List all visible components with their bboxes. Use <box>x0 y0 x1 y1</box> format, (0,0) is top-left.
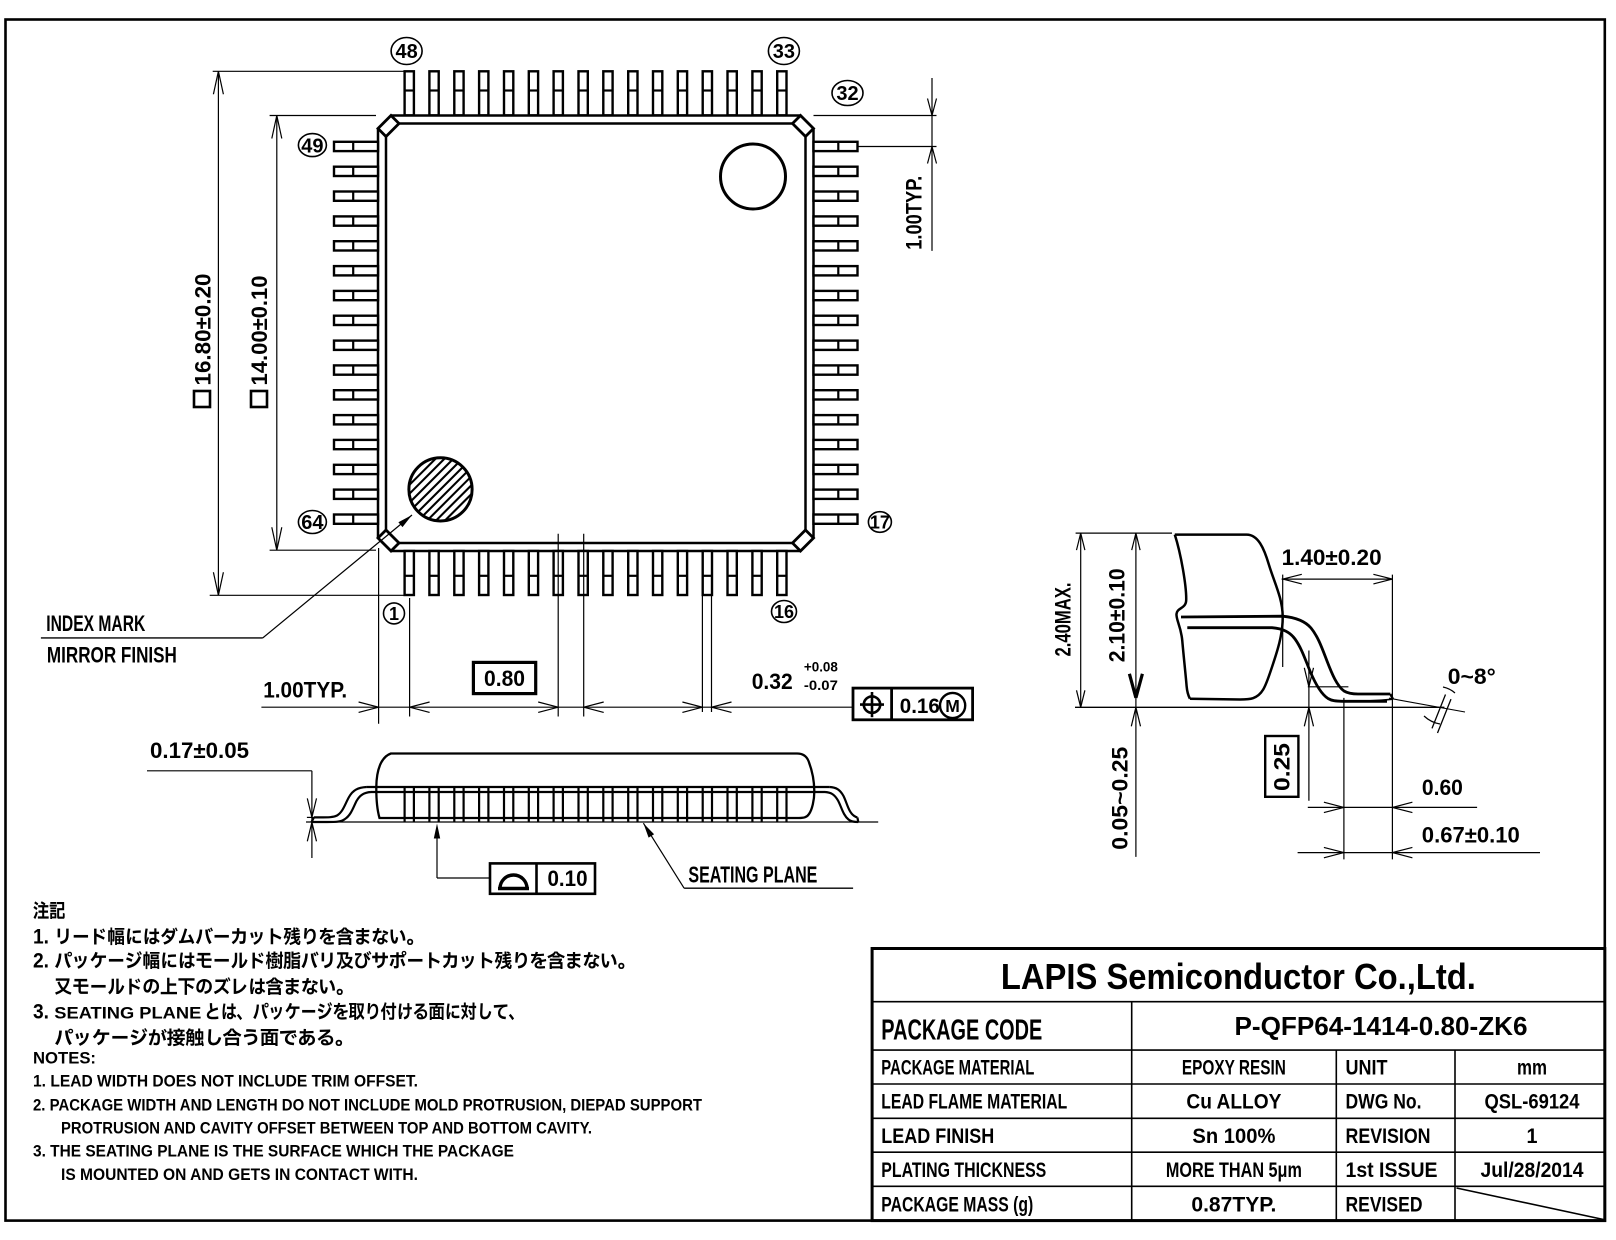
svg-text:0~8°: 0~8° <box>1448 664 1496 689</box>
svg-text:REVISION: REVISION <box>1346 1125 1431 1148</box>
svg-text:PROTRUSION AND CAVITY OFFSET B: PROTRUSION AND CAVITY OFFSET BETWEEN TOP… <box>61 1119 592 1138</box>
svg-text:PACKAGE MATERIAL: PACKAGE MATERIAL <box>881 1057 1034 1080</box>
svg-text:0.32: 0.32 <box>752 669 793 694</box>
svg-text:17: 17 <box>870 513 890 533</box>
svg-text:IS MOUNTED ON AND GETS IN CONT: IS MOUNTED ON AND GETS IN CONTACT WITH. <box>61 1165 418 1184</box>
svg-text:0.87TYP.: 0.87TYP. <box>1191 1194 1276 1217</box>
svg-text:16: 16 <box>774 602 794 622</box>
svg-text:EPOXY RESIN: EPOXY RESIN <box>1182 1057 1286 1080</box>
svg-text:LAPIS Semiconductor Co.,Ltd.: LAPIS Semiconductor Co.,Ltd. <box>1001 956 1476 997</box>
svg-text:SEATING PLANE: SEATING PLANE <box>54 1004 201 1023</box>
svg-text:1.: 1. <box>33 926 49 949</box>
svg-text:SEATING PLANE: SEATING PLANE <box>688 861 817 887</box>
svg-text:PLATING THICKNESS: PLATING THICKNESS <box>881 1159 1046 1182</box>
svg-text:MORE THAN 5μm: MORE THAN 5μm <box>1166 1159 1302 1182</box>
svg-text:3. THE SEATING PLANE IS THE S: 3. THE SEATING PLANE IS THE SURFACE WHIC… <box>33 1142 514 1161</box>
svg-text:0.67±0.10: 0.67±0.10 <box>1422 823 1520 848</box>
svg-text:33: 33 <box>773 41 795 63</box>
svg-text:LEAD FLAME MATERIAL: LEAD FLAME MATERIAL <box>881 1091 1067 1114</box>
svg-text:INDEX MARK: INDEX MARK <box>46 611 145 636</box>
svg-text:0.16: 0.16 <box>900 695 940 718</box>
svg-text:0.80: 0.80 <box>484 666 525 691</box>
svg-text:0.60: 0.60 <box>1422 775 1463 800</box>
svg-text:1. LEAD WIDTH DOES NOT INCLUD: 1. LEAD WIDTH DOES NOT INCLUDE TRIM OFFS… <box>33 1072 418 1091</box>
svg-text:PACKAGE CODE: PACKAGE CODE <box>881 1015 1042 1047</box>
svg-text:2.40MAX.: 2.40MAX. <box>1051 583 1076 657</box>
svg-text:64: 64 <box>301 512 324 534</box>
svg-text:QSL-69124: QSL-69124 <box>1485 1091 1580 1114</box>
svg-text:3.: 3. <box>33 1001 49 1024</box>
svg-text:Cu ALLOY: Cu ALLOY <box>1186 1091 1281 1114</box>
svg-text:2.: 2. <box>33 950 49 973</box>
svg-text:32: 32 <box>836 83 858 105</box>
svg-text:LEAD FINISH: LEAD FINISH <box>881 1125 994 1148</box>
svg-text:PACKAGE MASS (g): PACKAGE MASS (g) <box>881 1194 1033 1217</box>
svg-text:NOTES:: NOTES: <box>33 1049 96 1068</box>
svg-text:49: 49 <box>301 135 323 157</box>
svg-text:M: M <box>945 696 960 716</box>
svg-text:-0.07: -0.07 <box>804 677 838 693</box>
svg-text:1.00TYP.: 1.00TYP. <box>902 176 927 250</box>
svg-text:1.00TYP.: 1.00TYP. <box>263 678 347 703</box>
svg-text:UNIT: UNIT <box>1346 1057 1388 1080</box>
svg-text:0.25: 0.25 <box>1270 743 1295 791</box>
svg-text:REVISED: REVISED <box>1346 1194 1423 1217</box>
svg-text:1st ISSUE: 1st ISSUE <box>1346 1159 1438 1182</box>
svg-text:Jul/28/2014: Jul/28/2014 <box>1481 1159 1584 1182</box>
svg-text:14.00±0.10: 14.00±0.10 <box>247 276 272 386</box>
svg-text:Sn 100%: Sn 100% <box>1192 1125 1275 1148</box>
svg-text:0.17±0.05: 0.17±0.05 <box>150 738 249 763</box>
svg-text:2. PACKAGE WIDTH AND LENGTH D: 2. PACKAGE WIDTH AND LENGTH DO NOT INCLU… <box>33 1096 703 1115</box>
svg-text:P-QFP64-1414-0.80-ZK6: P-QFP64-1414-0.80-ZK6 <box>1235 1011 1528 1041</box>
svg-text:48: 48 <box>395 41 417 63</box>
svg-text:16.80±0.20: 16.80±0.20 <box>191 274 216 386</box>
svg-text:+0.08: +0.08 <box>804 659 838 675</box>
svg-text:MIRROR FINISH: MIRROR FINISH <box>47 642 177 667</box>
svg-text:1: 1 <box>389 604 399 624</box>
svg-text:DWG No.: DWG No. <box>1346 1091 1422 1114</box>
svg-text:2.10±0.10: 2.10±0.10 <box>1105 568 1130 662</box>
svg-text:mm: mm <box>1517 1057 1547 1080</box>
svg-text:0.05~0.25: 0.05~0.25 <box>1108 747 1133 850</box>
svg-text:0.10: 0.10 <box>548 866 588 891</box>
svg-text:1: 1 <box>1527 1125 1538 1148</box>
svg-text:1.40±0.20: 1.40±0.20 <box>1282 545 1382 570</box>
